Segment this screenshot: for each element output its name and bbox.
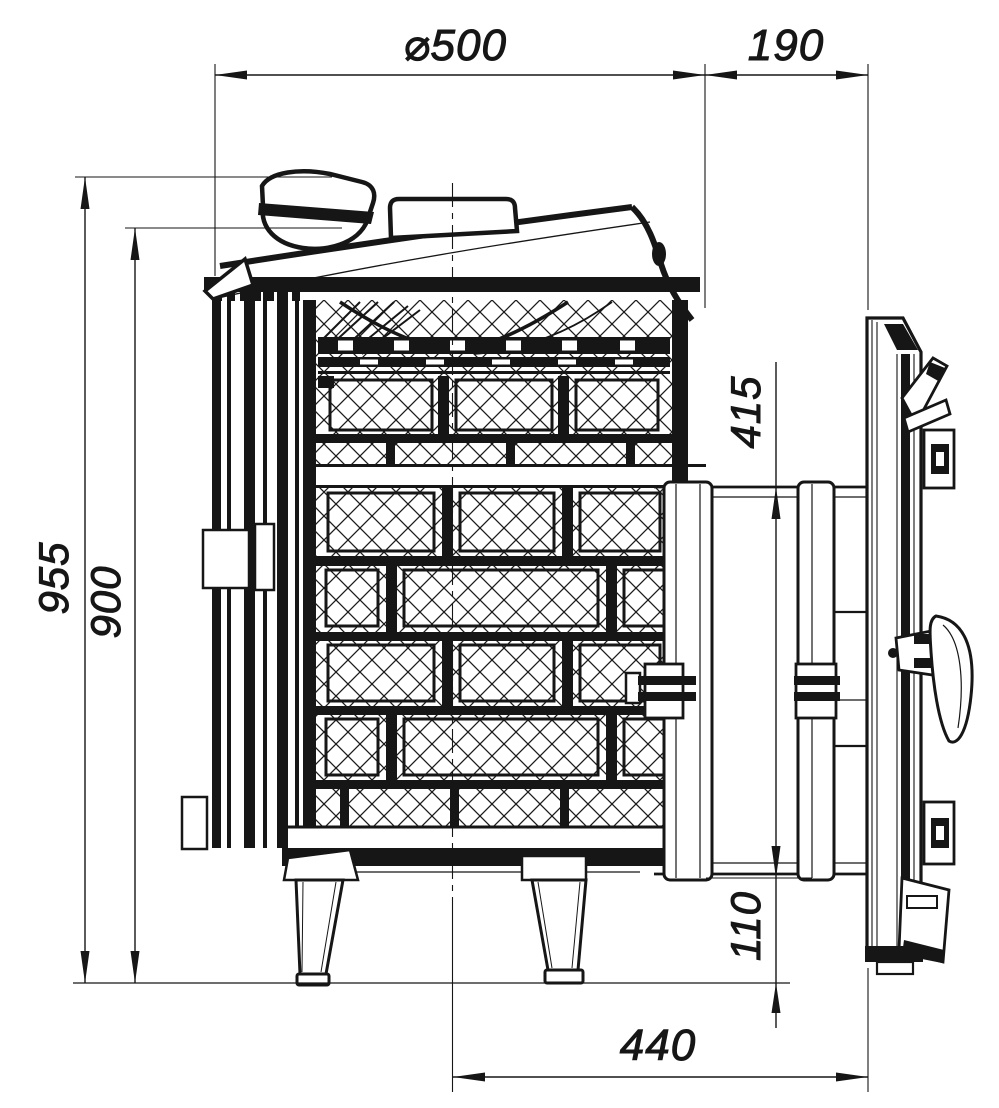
dim-label-900: 900 — [82, 565, 129, 638]
casing-latch-lower — [182, 797, 207, 849]
furnace-door — [865, 318, 972, 974]
dim-label-500: ⌀500 — [403, 21, 507, 70]
casing-latch-upper — [203, 530, 249, 588]
dim-base-110: 110 — [722, 891, 781, 1013]
arrow-down-icon — [131, 951, 140, 983]
casing-latch-inner — [255, 524, 274, 590]
dim-diameter-500: ⌀500 — [215, 21, 705, 80]
chimney-collar — [390, 199, 517, 238]
arrow-left-icon — [705, 71, 737, 80]
arrow-down-icon — [81, 951, 90, 983]
door-keeper-upper — [924, 430, 954, 488]
masonry-interior — [314, 300, 706, 826]
dim-height-900: 900 — [82, 228, 140, 983]
dim-length-440: 440 — [453, 1021, 868, 1082]
stove-technical-drawing: ⌀500 190 955 900 415 110 — [0, 0, 999, 1108]
dim-label-190: 190 — [748, 21, 824, 70]
arrow-right-icon — [836, 71, 868, 80]
dim-height-955: 955 — [30, 177, 90, 983]
tunnel-clamp-right — [794, 664, 840, 718]
dim-label-955: 955 — [30, 541, 77, 614]
legs — [284, 850, 586, 985]
stone-shelf — [314, 464, 706, 488]
front-leg — [522, 856, 586, 983]
arrow-left-icon — [215, 71, 247, 80]
drawing-canvas: ⌀500 190 955 900 415 110 — [0, 0, 999, 1108]
arrow-up-icon — [772, 487, 781, 519]
arrow-up-icon — [772, 983, 781, 1013]
dim-label-415: 415 — [722, 375, 769, 448]
arrow-up-icon — [81, 177, 90, 209]
damper-bowl — [258, 171, 374, 249]
rear-leg — [284, 850, 520, 985]
arrow-left-icon — [453, 1073, 485, 1082]
arrow-up-icon — [131, 228, 140, 260]
dim-label-440: 440 — [620, 1021, 696, 1070]
dim-label-110: 110 — [722, 891, 769, 961]
arrow-right-icon — [836, 1073, 868, 1082]
arrow-right-icon — [673, 71, 705, 80]
door-keeper-lower — [924, 802, 954, 864]
dim-depth-190: 190 — [705, 21, 868, 80]
cover-ridge-knob — [652, 242, 666, 266]
